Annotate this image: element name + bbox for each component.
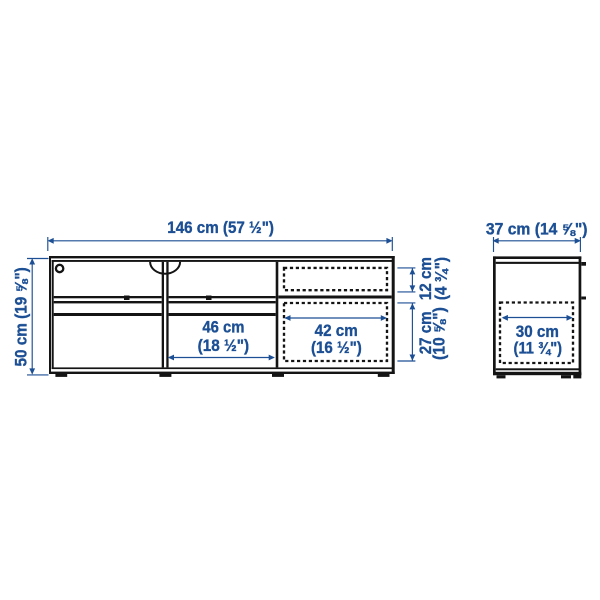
svg-text:46 cm: 46 cm [202, 319, 244, 337]
svg-text:(11 ¾"): (11 ¾") [514, 340, 562, 358]
svg-text:(18 ½"): (18 ½") [198, 336, 250, 355]
svg-text:42 cm: 42 cm [315, 321, 358, 340]
svg-text:(4 ¾"): (4 ¾") [432, 257, 451, 300]
svg-text:37 cm (14 ⅝"): 37 cm (14 ⅝") [486, 220, 588, 239]
svg-text:30 cm: 30 cm [516, 322, 559, 341]
svg-text:50 cm (19 ⅝"): 50 cm (19 ⅝") [12, 267, 31, 366]
svg-text:(16 ½"): (16 ½") [311, 339, 362, 357]
svg-text:(10 ⅝"): (10 ⅝") [430, 307, 449, 360]
svg-text:146 cm (57 ½"): 146 cm (57 ½") [167, 220, 274, 238]
